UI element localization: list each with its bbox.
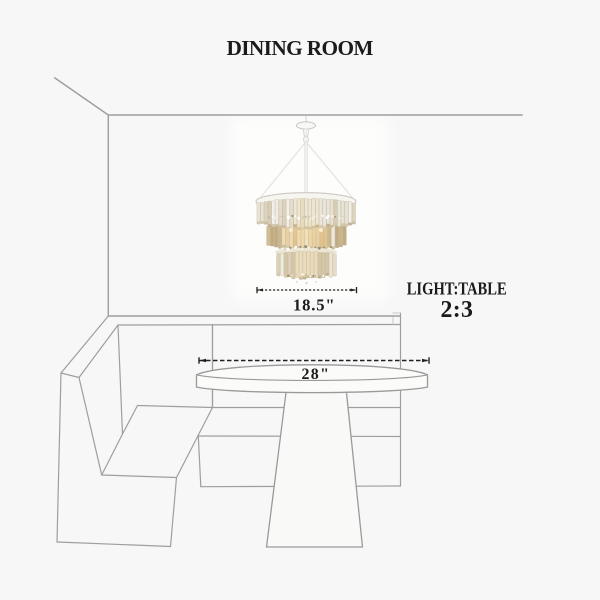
- svg-text:2:3: 2:3: [440, 297, 473, 323]
- svg-text:18.5": 18.5": [293, 296, 335, 315]
- svg-text:DINING ROOM: DINING ROOM: [227, 36, 374, 60]
- svg-text:LIGHT:TABLE: LIGHT:TABLE: [407, 278, 507, 298]
- svg-text:28": 28": [301, 366, 329, 383]
